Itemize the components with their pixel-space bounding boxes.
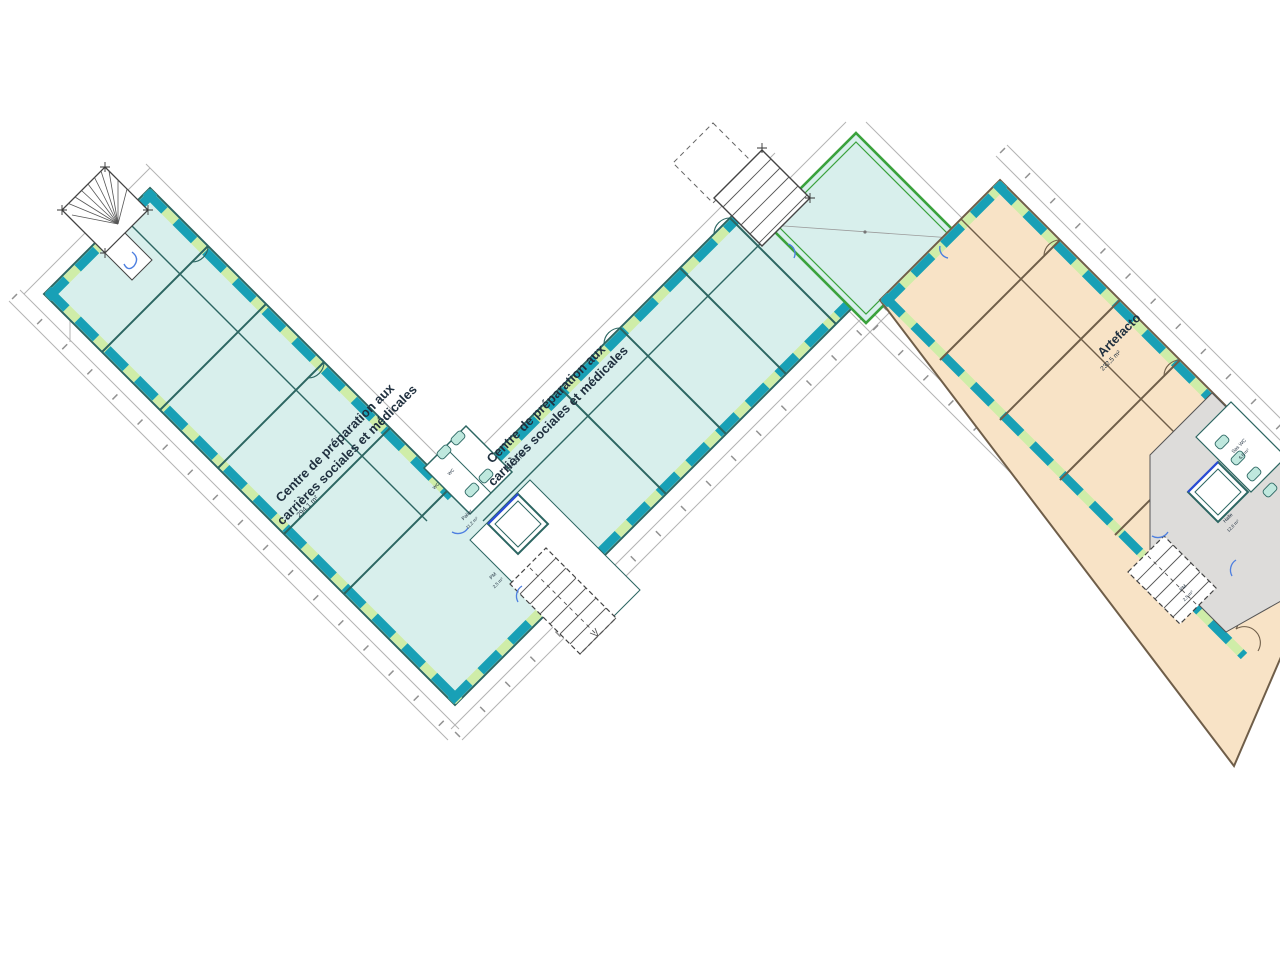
floorplan-canvas: Centre de préparation aux carrières soci…: [0, 0, 1280, 960]
survey-cross: [757, 143, 767, 153]
floorplan-drawing: Centre de préparation aux carrières soci…: [0, 0, 1280, 960]
atrium-guide-dot: [863, 230, 866, 233]
